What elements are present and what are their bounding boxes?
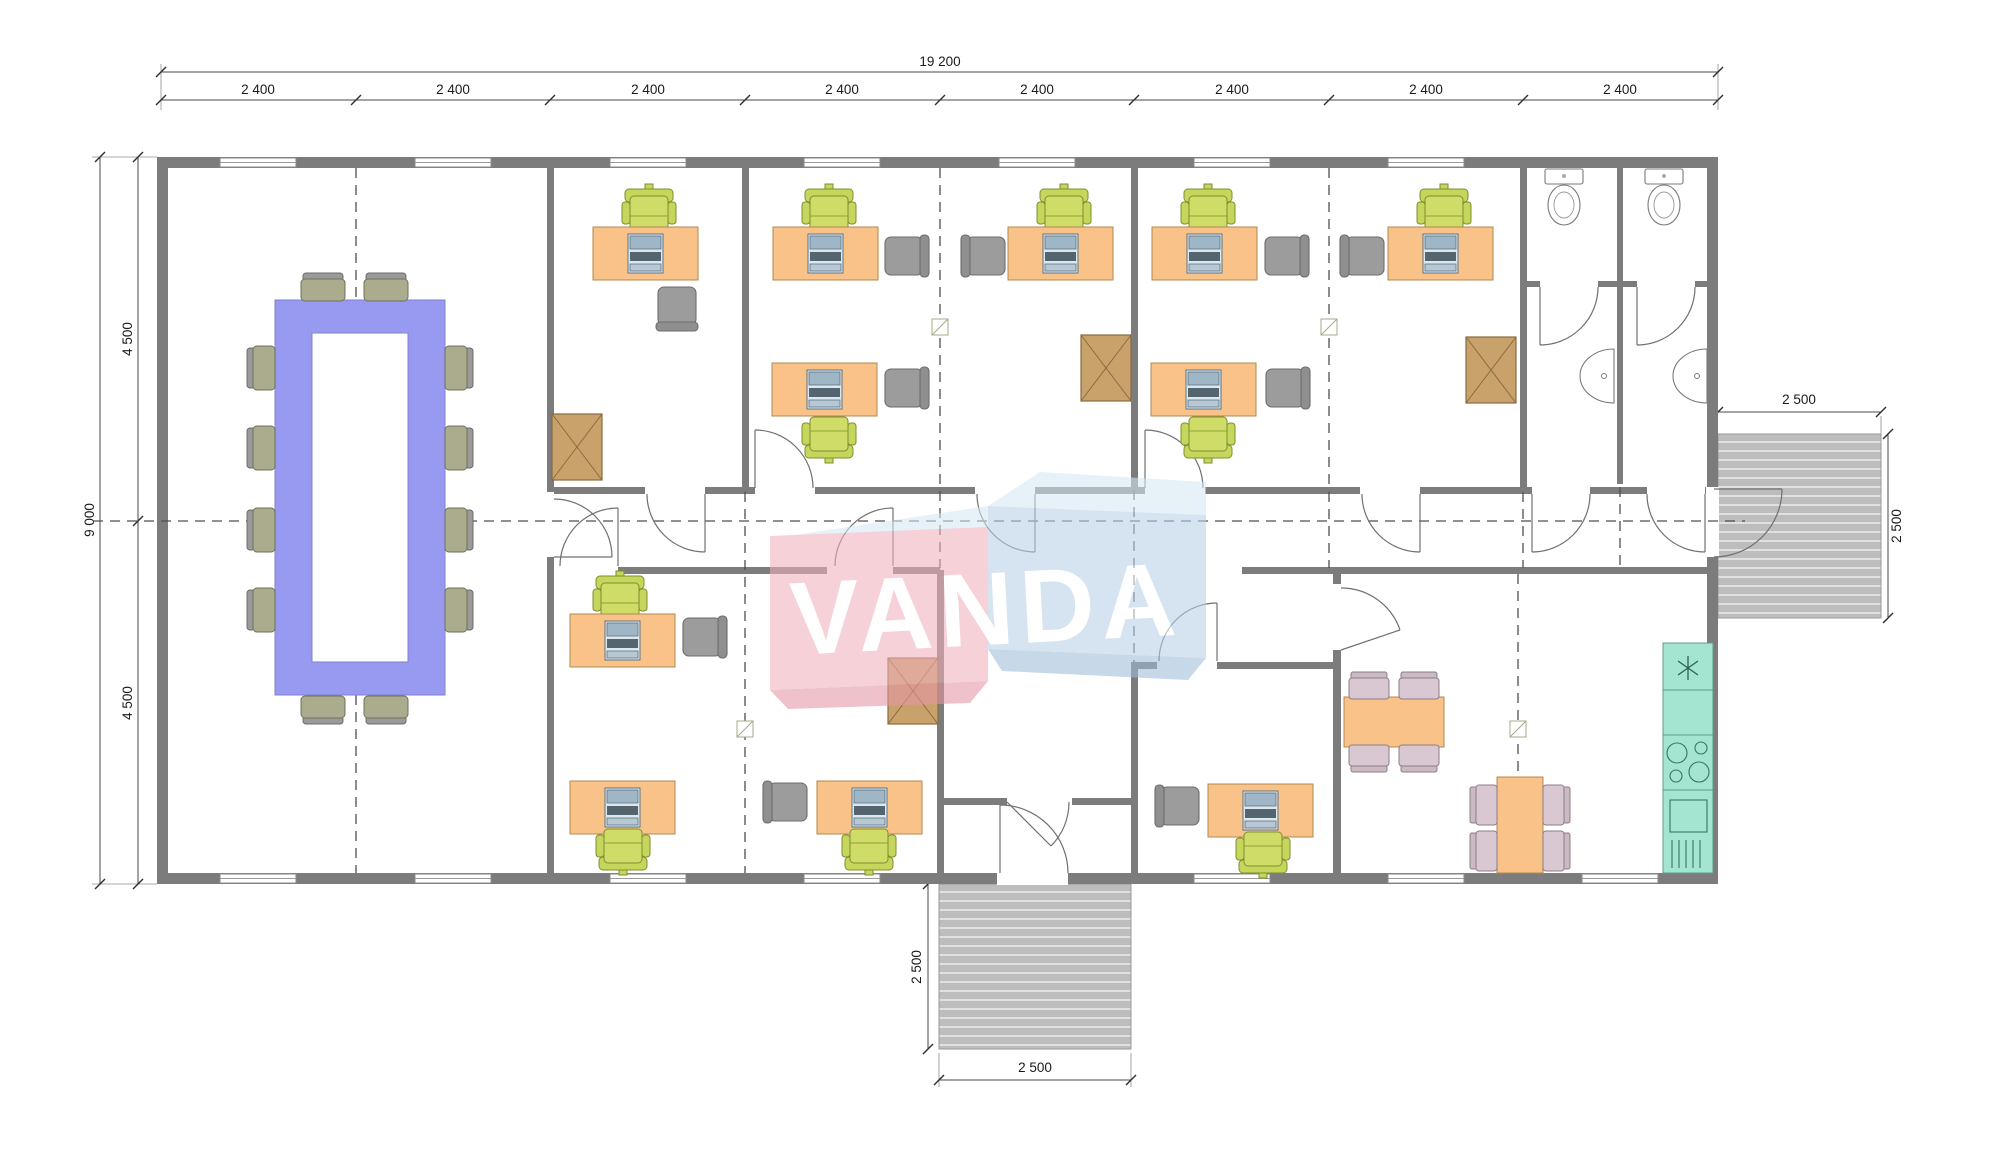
dim-bay: 2 400 <box>631 82 665 97</box>
door-wc1-inner <box>1540 287 1598 345</box>
watermark-text: VANDA <box>787 542 1185 678</box>
dim-left-top: 4 500 <box>120 322 135 356</box>
dining-chair <box>1543 831 1570 871</box>
dim-bay: 2 400 <box>1409 82 1443 97</box>
watermark: VANDA <box>770 472 1206 709</box>
office-chair-green <box>1417 184 1471 230</box>
dim-bay: 2 400 <box>1215 82 1249 97</box>
dim-total-height: 9 000 <box>82 503 97 537</box>
conference-room <box>247 273 473 724</box>
office-chair-gray <box>1265 235 1309 277</box>
conference-chair <box>445 346 473 390</box>
office-5 <box>1155 784 1313 878</box>
desk <box>772 363 877 416</box>
dining-chair <box>1349 745 1389 772</box>
dining-chair <box>1399 745 1439 772</box>
porch-bottom <box>939 884 1131 1049</box>
conference-chair <box>247 426 275 470</box>
dim-porch-side-h: 2 500 <box>1889 509 1904 543</box>
office-chair-gray <box>656 287 698 331</box>
cabinet <box>1081 335 1131 401</box>
conference-chair <box>364 696 408 724</box>
office-chair-green <box>1037 184 1091 230</box>
office-1 <box>552 184 698 480</box>
office-2 <box>772 184 1131 463</box>
office-chair-gray <box>1340 235 1384 277</box>
floor-plan: 19 200 2 400 2 400 2 400 2 400 2 400 2 4… <box>0 0 2000 1160</box>
conference-chair <box>247 346 275 390</box>
dining-table <box>1497 777 1543 873</box>
door-office1 <box>647 494 705 552</box>
office-chair-green <box>1181 184 1235 230</box>
dining-chair <box>1399 672 1439 699</box>
conference-chair <box>445 426 473 470</box>
floor-plan-canvas: 19 200 2 400 2 400 2 400 2 400 2 400 2 4… <box>0 0 2000 1160</box>
dining-chair <box>1470 831 1497 871</box>
desk <box>773 227 878 280</box>
door-wc1 <box>1532 494 1590 552</box>
dining-chair <box>1349 672 1389 699</box>
cabinet <box>552 414 602 480</box>
kitchen-counter <box>1663 643 1713 873</box>
office-chair-green <box>1236 832 1290 878</box>
desk <box>593 227 698 280</box>
dining-chair <box>1543 785 1570 825</box>
desk <box>1151 363 1256 416</box>
desk <box>570 614 675 667</box>
conference-chair <box>364 273 408 301</box>
conference-chair <box>301 273 345 301</box>
conference-chair <box>247 508 275 552</box>
dining-chair <box>1470 785 1497 825</box>
conference-chair <box>301 696 345 724</box>
office-chair-green <box>802 417 856 463</box>
dimension-top: 19 200 2 400 2 400 2 400 2 400 2 400 2 4… <box>156 54 1723 110</box>
office-chair-gray <box>1155 785 1199 827</box>
door-break-room <box>1341 588 1400 650</box>
sink <box>1673 349 1707 403</box>
dim-left-bottom: 4 500 <box>120 686 135 720</box>
cabinet <box>1466 337 1516 403</box>
conference-table-opening <box>312 333 408 662</box>
sink <box>1580 349 1614 403</box>
office-chair-green <box>1181 417 1235 463</box>
dining-table <box>1344 697 1444 747</box>
porch-side <box>1718 434 1881 618</box>
dim-porch-side-w: 2 500 <box>1782 392 1816 407</box>
toilet <box>1545 169 1583 225</box>
break-room <box>1344 643 1713 873</box>
office-chair-green <box>842 829 896 875</box>
door-office3-right <box>1362 494 1420 552</box>
dim-bay: 2 400 <box>241 82 275 97</box>
conference-chair <box>445 508 473 552</box>
dim-porch-bottom-w: 2 500 <box>1018 1060 1052 1075</box>
office-chair-green <box>622 184 676 230</box>
conference-chair <box>247 588 275 632</box>
office-chair-gray <box>961 235 1005 277</box>
office-chair-green <box>802 184 856 230</box>
desk <box>1008 227 1113 280</box>
desk <box>1388 227 1493 280</box>
desk <box>1152 227 1257 280</box>
dim-bay: 2 400 <box>825 82 859 97</box>
desk <box>570 781 675 834</box>
desk <box>1208 784 1313 837</box>
dim-bay: 2 400 <box>1020 82 1054 97</box>
door-wc2 <box>1647 494 1705 552</box>
office-chair-gray <box>763 781 807 823</box>
toilet <box>1645 169 1683 225</box>
conference-chair <box>445 588 473 632</box>
door-wc2-inner <box>1637 287 1695 345</box>
office-chair-green <box>596 829 650 875</box>
dim-porch-bottom-h: 2 500 <box>909 950 924 984</box>
office-chair-gray <box>885 367 929 409</box>
desk <box>817 781 922 834</box>
dim-total-width: 19 200 <box>919 54 960 69</box>
dim-bay: 2 400 <box>1603 82 1637 97</box>
office-chair-gray <box>885 235 929 277</box>
office-chair-gray <box>1266 367 1310 409</box>
dim-bay: 2 400 <box>436 82 470 97</box>
office-chair-gray <box>683 616 727 658</box>
office-chair-green <box>593 571 647 617</box>
